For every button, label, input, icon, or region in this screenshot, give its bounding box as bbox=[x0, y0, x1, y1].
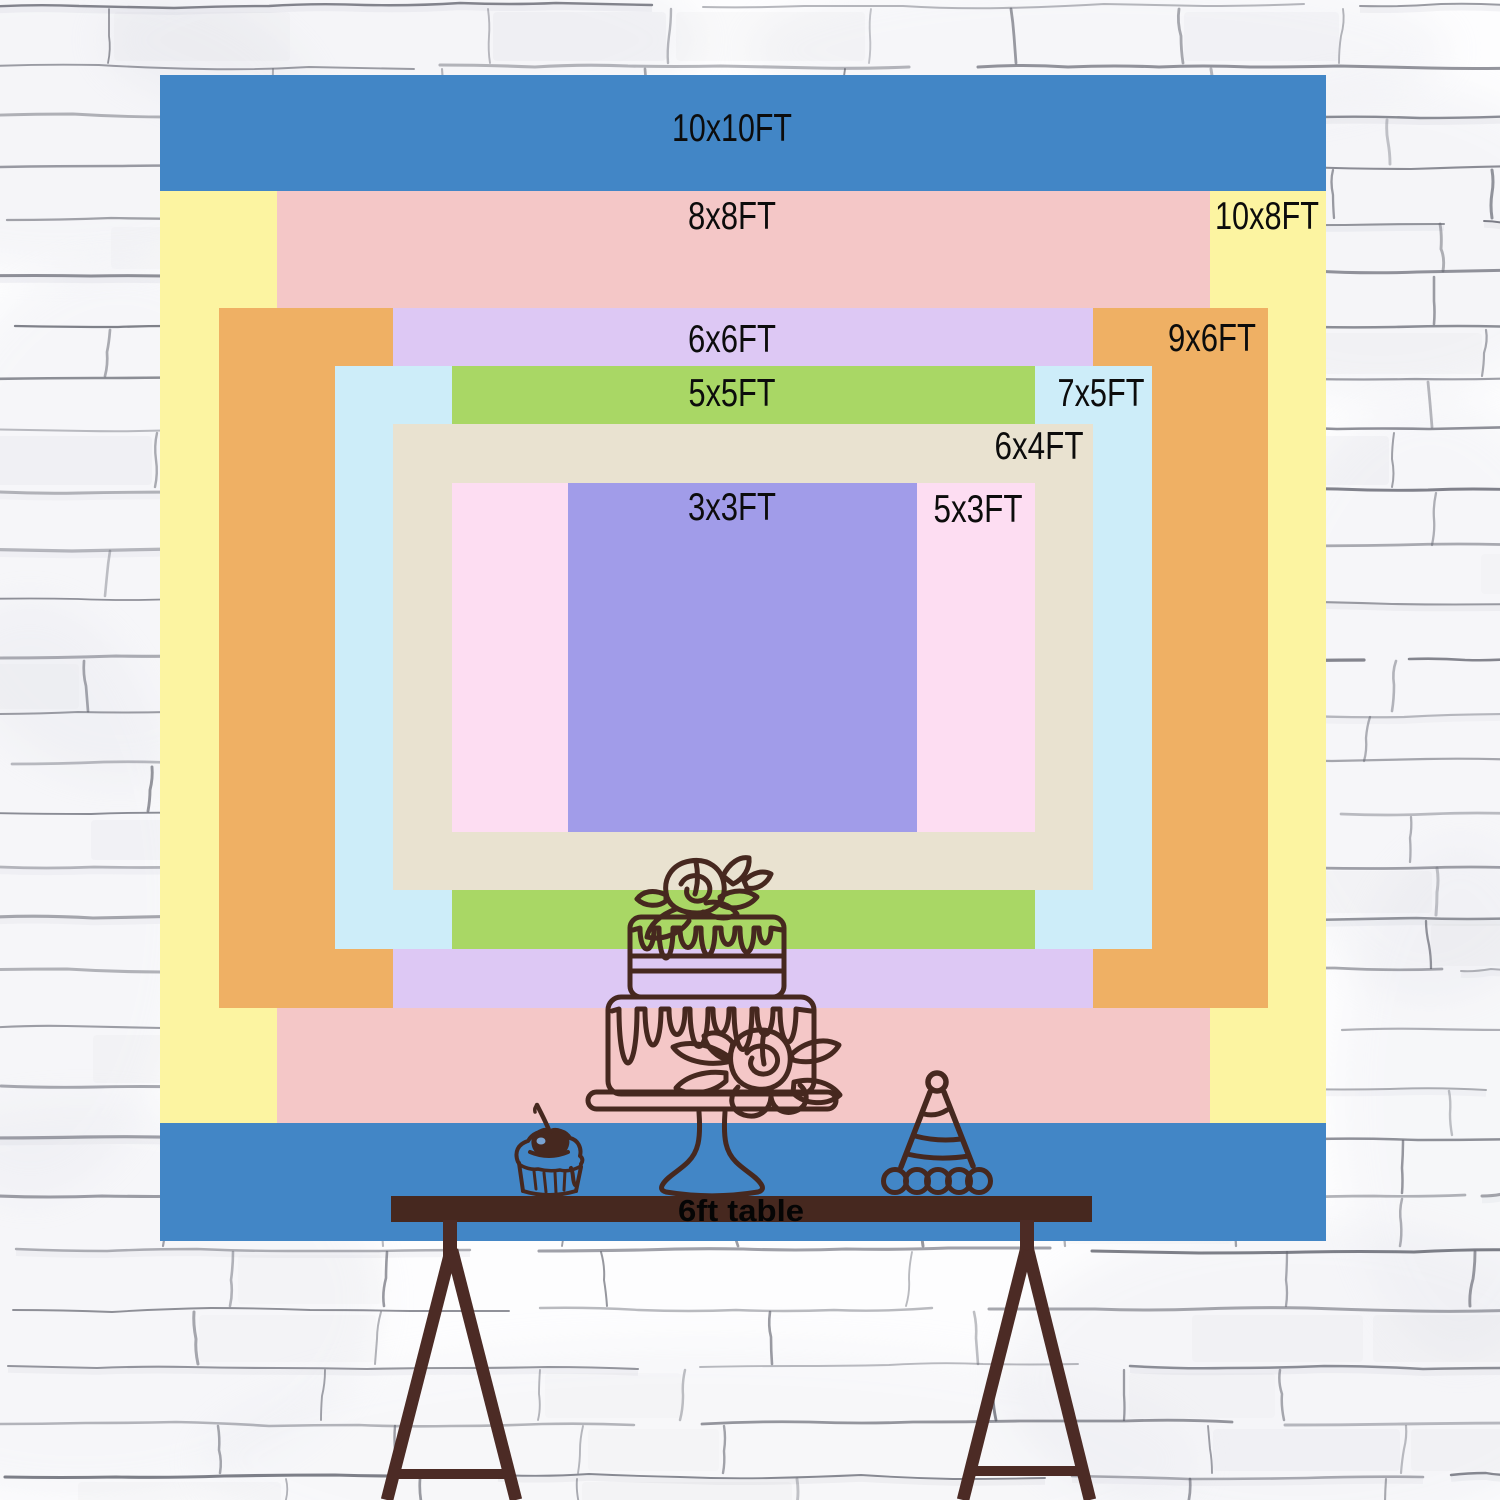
svg-text:6ft table: 6ft table bbox=[678, 1193, 804, 1228]
svg-text:6x6FT: 6x6FT bbox=[688, 318, 776, 361]
svg-text:8x8FT: 8x8FT bbox=[688, 195, 776, 238]
svg-text:5x5FT: 5x5FT bbox=[689, 372, 776, 415]
svg-text:10x8FT: 10x8FT bbox=[1215, 195, 1319, 238]
svg-text:7x5FT: 7x5FT bbox=[1058, 372, 1145, 415]
svg-text:5x3FT: 5x3FT bbox=[934, 488, 1023, 531]
svg-text:10x10FT: 10x10FT bbox=[672, 107, 792, 150]
svg-text:9x6FT: 9x6FT bbox=[1168, 317, 1256, 360]
svg-text:3x3FT: 3x3FT bbox=[688, 486, 776, 529]
svg-text:6x4FT: 6x4FT bbox=[995, 425, 1084, 468]
